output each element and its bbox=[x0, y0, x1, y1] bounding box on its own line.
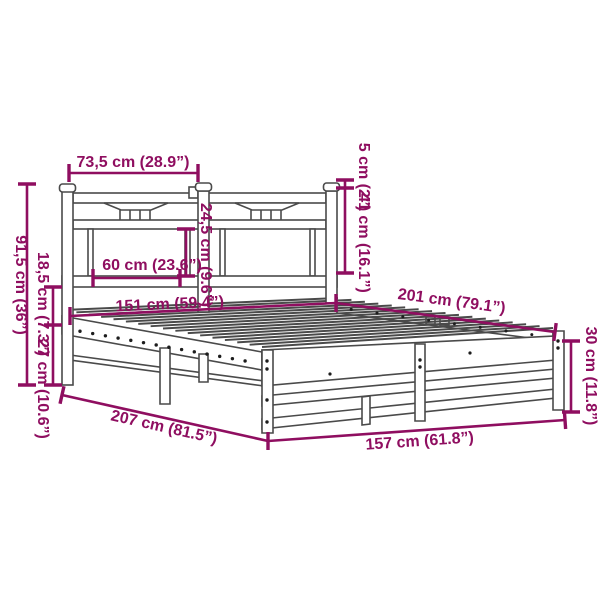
post-cap bbox=[60, 184, 76, 192]
label-total-length: 207 cm (81.5”) bbox=[109, 407, 219, 447]
side-leg bbox=[160, 348, 170, 404]
foot-end-frame bbox=[262, 331, 564, 433]
label-under-bed-clearance: 27 cm (10.6”) bbox=[34, 339, 51, 439]
post-cap bbox=[196, 183, 212, 191]
dim-post-top bbox=[336, 180, 354, 273]
headboard-ornament bbox=[235, 203, 299, 210]
diagram-canvas: 73,5 cm (28.9”) 5 cm (2”) 41 cm (16.1”) … bbox=[0, 0, 600, 600]
label-headboard-section-width: 73,5 cm (28.9”) bbox=[77, 154, 190, 171]
foot-center-bar bbox=[362, 396, 370, 425]
label-opening-width: 60 cm (23.6”) bbox=[102, 257, 202, 274]
headboard-bar bbox=[220, 229, 225, 276]
side-support-leg bbox=[199, 354, 208, 382]
headboard-left-post bbox=[62, 191, 73, 385]
label-headboard-total-height: 91,5 cm (36”) bbox=[12, 235, 29, 335]
headboard-ornament bbox=[104, 203, 168, 210]
label-opening-height: 24,5 cm (9.6”) bbox=[197, 203, 214, 307]
bed-frame-dimension-diagram: 73,5 cm (28.9”) 5 cm (2”) 41 cm (16.1”) … bbox=[0, 0, 600, 600]
label-foot-end-height: 30 cm (11.8”) bbox=[582, 327, 599, 426]
headboard-bar bbox=[88, 229, 93, 276]
foot-middle-leg bbox=[415, 344, 425, 421]
rear-corner-leg bbox=[553, 331, 564, 410]
headboard-right-post bbox=[326, 191, 337, 303]
label-headboard-panel-height: 41 cm (16.1”) bbox=[355, 193, 372, 293]
headboard-bar bbox=[310, 229, 315, 276]
dimension-labels: 73,5 cm (28.9”) 5 cm (2”) 41 cm (16.1”) … bbox=[12, 143, 599, 454]
